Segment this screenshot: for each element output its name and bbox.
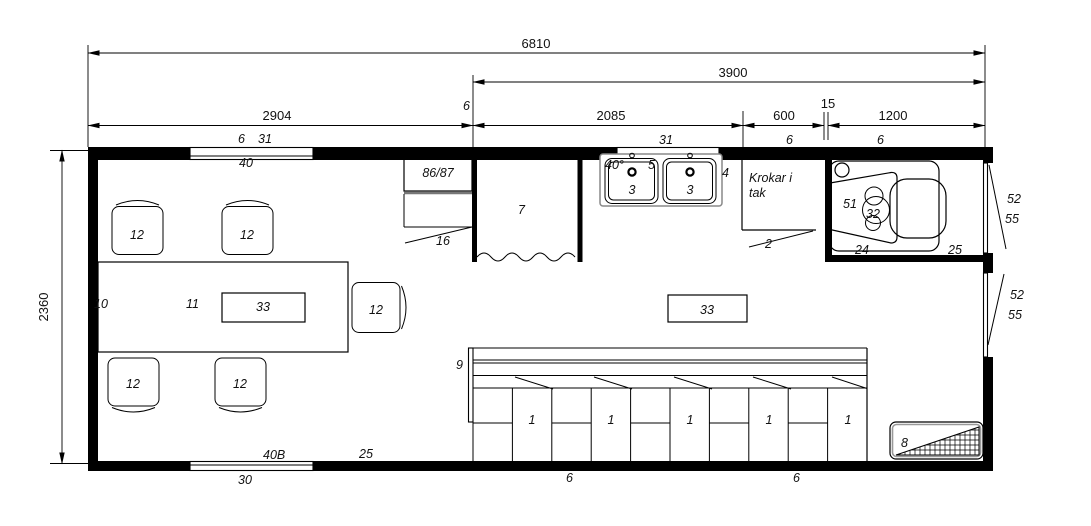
shower-partition-walls [472, 160, 583, 262]
label-hooks-note-2: tak [749, 186, 766, 200]
label-shower-7: 7 [518, 203, 526, 217]
label-sink-window-31: 31 [659, 133, 673, 147]
toilet-seat [890, 179, 946, 238]
door-upper [984, 163, 1007, 253]
dim-text-depth: 2360 [36, 293, 51, 322]
locker-door-tick [674, 377, 712, 389]
label-wc-mark-25: 25 [947, 243, 962, 257]
label-door-lower-55: 55 [1008, 308, 1022, 322]
label-temp-40: 40° [605, 158, 624, 172]
dim-text-hook-span: 600 [773, 108, 795, 123]
outer-walls [88, 147, 993, 471]
label-toilet-51: 51 [843, 197, 857, 211]
label-wc-wall-6: 6 [877, 133, 884, 147]
label-hooks-leader-2: 2 [764, 237, 772, 251]
label-hook-wall-6: 6 [786, 133, 793, 147]
locker-door-tick [832, 377, 867, 389]
label-locker-1: 1 [608, 413, 615, 427]
shower-curtain-wavy-line [477, 253, 575, 261]
drain-left [628, 168, 635, 175]
label-floor-joint-left: 6 [566, 471, 573, 485]
door-lower-leaf [984, 273, 988, 357]
toilet-detail-circle-top [865, 187, 883, 205]
dim-text-left-span: 2904 [263, 108, 292, 123]
label-partition-6: 6 [463, 99, 470, 113]
label-counter-16: 16 [436, 234, 450, 248]
label-chair-12: 12 [126, 377, 140, 391]
label-chair-12: 12 [369, 303, 383, 317]
door-upper-swing [989, 165, 1006, 249]
label-chair-12: 12 [240, 228, 254, 242]
label-bottom-40B: 40B [263, 448, 285, 462]
wc-pipe [835, 163, 849, 177]
label-bench-9: 9 [456, 358, 463, 372]
door-upper-leaf [984, 163, 988, 253]
label-tap-5: 5 [648, 158, 655, 172]
label-top-window-31: 31 [258, 132, 272, 146]
label-top-window-40: 40 [239, 156, 253, 170]
label-door-lower-52: 52 [1010, 288, 1024, 302]
label-hooks-note-1: Krokar i [749, 171, 793, 185]
label-wc-floor-24: 24 [854, 243, 869, 257]
toilet-tank [830, 172, 897, 243]
label-chair-12: 12 [233, 377, 247, 391]
locker-door-tick [594, 377, 632, 389]
label-locker-1: 1 [687, 413, 694, 427]
leader-line-2 [749, 231, 813, 247]
label-top-window-6: 6 [238, 132, 245, 146]
bench-post [469, 348, 474, 422]
label-toilet-32: 32 [866, 207, 880, 221]
label-table-box-33: 33 [256, 300, 270, 314]
locker-door-tick [753, 377, 791, 389]
label-sink-bench-4: 4 [722, 166, 729, 180]
label-door-upper-52: 52 [1007, 192, 1021, 206]
label-center-box-33: 33 [700, 303, 714, 317]
door-lower [984, 273, 1005, 357]
locker-door-tick [515, 377, 553, 389]
bench-and-lockers [469, 348, 868, 461]
dining-table [98, 262, 348, 352]
label-locker-1: 1 [766, 413, 773, 427]
label-locker-1: 1 [529, 413, 536, 427]
label-locker-1: 1 [845, 413, 852, 427]
label-bottom-25: 25 [358, 447, 373, 461]
dim-text-right-span: 3900 [719, 65, 748, 80]
label-sink-left-3: 3 [629, 183, 636, 197]
dim-text-mid-span: 2085 [597, 108, 626, 123]
floor-plan-canvas: 6810 3900 2904 2085 600 15 1200 2360 6 6… [0, 0, 1091, 526]
drain-right [686, 168, 693, 175]
door-lower-swing [988, 274, 1004, 345]
dim-text-overall-width: 6810 [522, 36, 551, 51]
label-chair-12: 12 [130, 228, 144, 242]
label-cabinet-86-87: 86/87 [422, 166, 454, 180]
label-bottom-30: 30 [238, 473, 252, 487]
label-door-upper-55: 55 [1005, 212, 1019, 226]
label-floor-joint-right: 6 [793, 471, 800, 485]
label-heater-8: 8 [901, 436, 908, 450]
window-bottom-left [190, 462, 313, 471]
dimension-lines [50, 45, 985, 464]
label-sink-right-3: 3 [687, 183, 694, 197]
label-table-11: 11 [186, 297, 199, 311]
dim-text-wc-span: 1200 [879, 108, 908, 123]
dim-text-gap: 15 [821, 96, 835, 111]
label-floor-10: 10 [94, 297, 108, 311]
